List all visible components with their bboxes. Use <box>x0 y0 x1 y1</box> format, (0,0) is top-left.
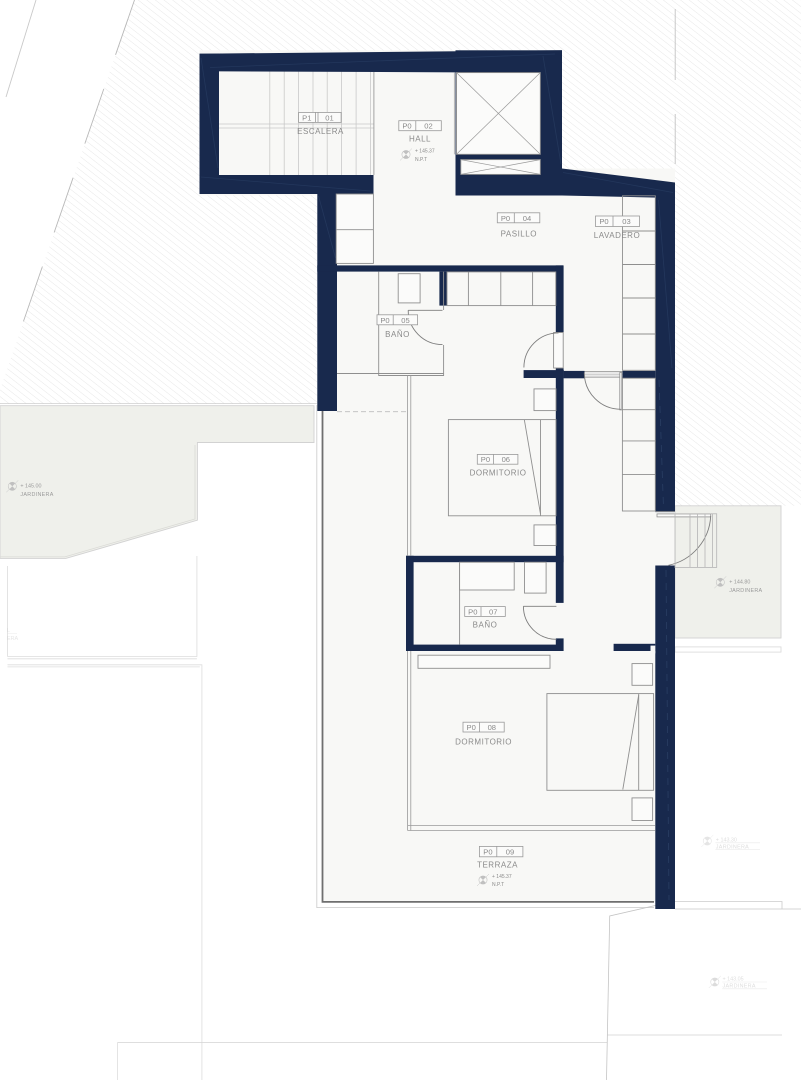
svg-text:08: 08 <box>488 723 496 732</box>
svg-text:07: 07 <box>489 607 497 616</box>
svg-text:01: 01 <box>325 113 333 122</box>
svg-text:P0: P0 <box>599 217 608 226</box>
svg-text:ERA: ERA <box>7 636 18 642</box>
svg-text:02: 02 <box>424 122 432 131</box>
svg-text:JARDINERA: JARDINERA <box>20 492 53 498</box>
svg-text:HALL: HALL <box>409 135 431 144</box>
svg-text:P1: P1 <box>302 113 311 122</box>
svg-text:P0: P0 <box>468 607 477 616</box>
svg-text:05: 05 <box>401 316 409 325</box>
svg-text:P0: P0 <box>402 122 411 131</box>
svg-text:PASILLO: PASILLO <box>501 230 537 239</box>
svg-text:DORMITORIO: DORMITORIO <box>455 738 512 747</box>
svg-text:N.P.T: N.P.T <box>492 882 504 888</box>
svg-text:TERRAZA: TERRAZA <box>477 861 518 870</box>
svg-text:+ 145.37: + 145.37 <box>415 149 435 155</box>
svg-text:+ 144.80: + 144.80 <box>729 579 750 585</box>
svg-text:P0: P0 <box>467 723 476 732</box>
svg-text:BAÑO: BAÑO <box>385 330 410 339</box>
svg-text:06: 06 <box>502 455 510 464</box>
svg-text:+ 143.05: + 143.05 <box>723 977 744 983</box>
svg-text:+ 145.37: + 145.37 <box>492 874 512 880</box>
svg-text:JARDINERA: JARDINERA <box>729 588 762 594</box>
svg-text:+ 145.00: + 145.00 <box>20 483 41 489</box>
svg-text:N.P.T: N.P.T <box>415 157 427 163</box>
svg-text:LAVADERO: LAVADERO <box>594 231 640 240</box>
svg-text:L: L <box>7 628 10 634</box>
svg-text:09: 09 <box>506 848 514 857</box>
svg-text:ESCALERA: ESCALERA <box>297 127 344 136</box>
svg-text:03: 03 <box>622 217 630 226</box>
svg-text:P0: P0 <box>483 848 492 857</box>
svg-text:P0: P0 <box>481 455 490 464</box>
svg-text:04: 04 <box>523 214 531 223</box>
svg-text:DORMITORIO: DORMITORIO <box>470 469 527 478</box>
svg-text:P0: P0 <box>501 214 510 223</box>
svg-text:BAÑO: BAÑO <box>473 621 498 630</box>
svg-text:P0: P0 <box>380 316 389 325</box>
